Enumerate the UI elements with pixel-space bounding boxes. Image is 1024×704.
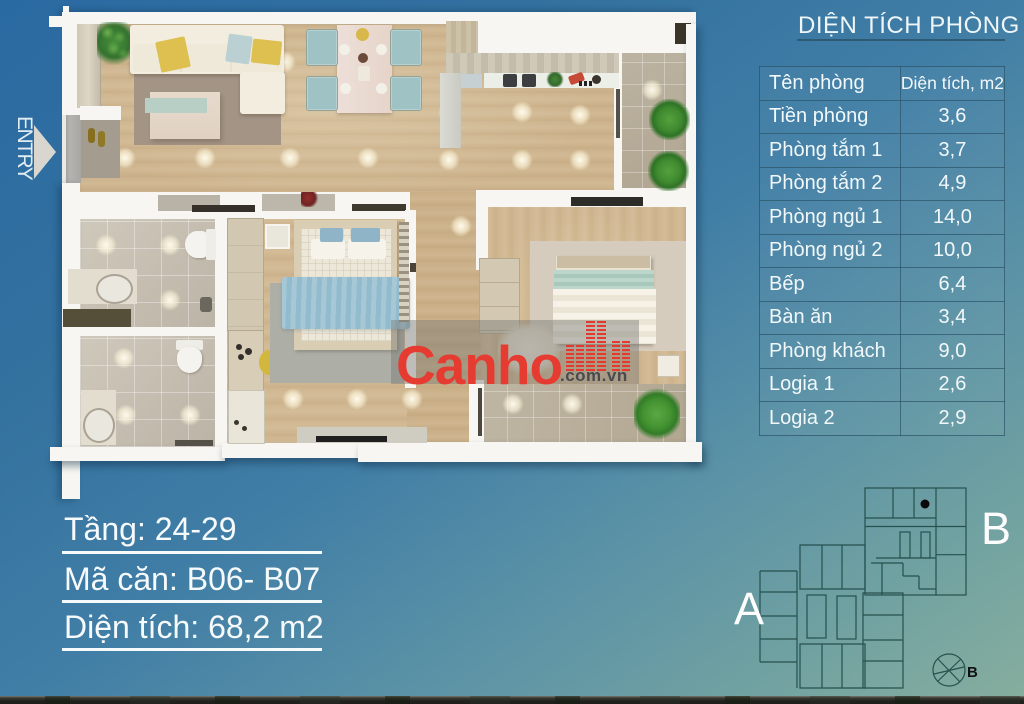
svg-text:B: B	[967, 664, 978, 681]
